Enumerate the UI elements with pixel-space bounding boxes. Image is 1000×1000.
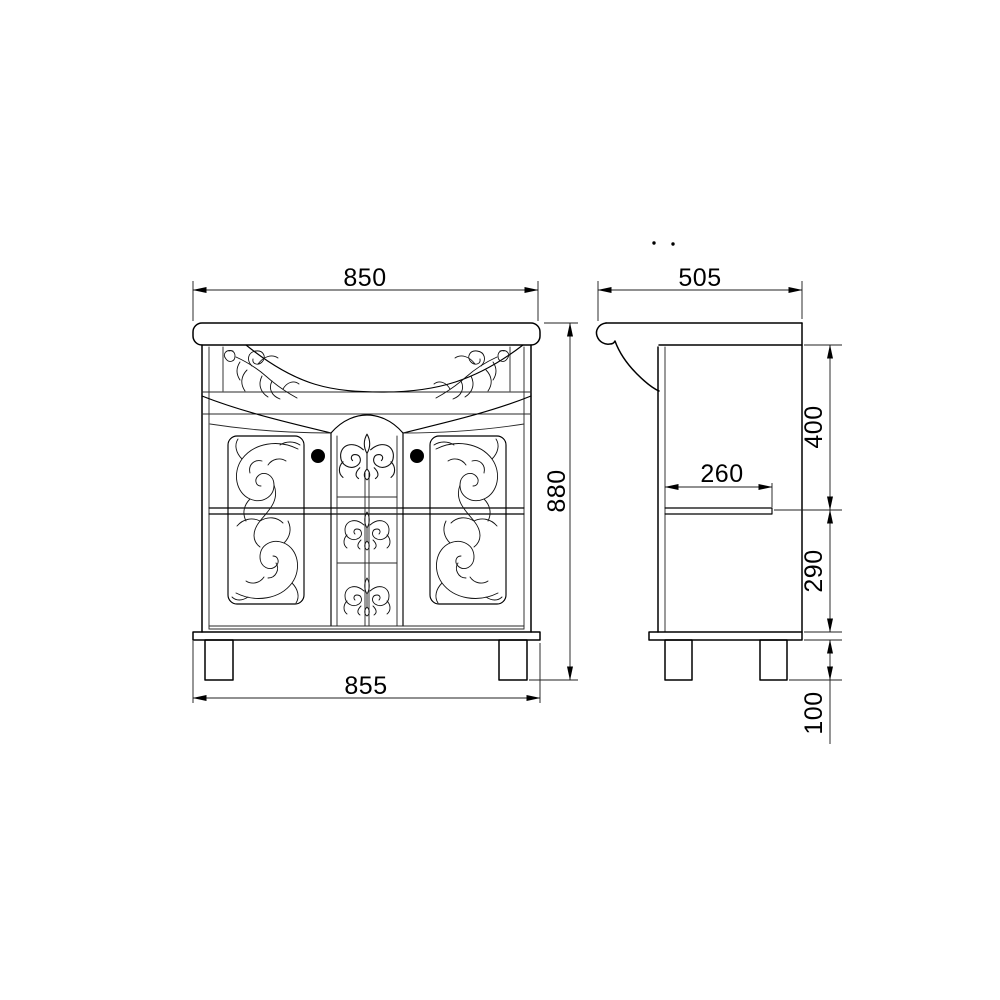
- center-arch: [331, 415, 403, 433]
- side-view: [596, 323, 802, 680]
- dim-front-width-bottom-label: 855: [344, 672, 387, 700]
- dim-side-depth: 505: [598, 264, 802, 321]
- door-panel-right: [430, 436, 506, 604]
- front-countertop: [193, 323, 540, 345]
- side-foot-front: [665, 640, 692, 680]
- dim-side-lower-height: 290: [800, 510, 830, 632]
- side-foot-rear: [760, 640, 787, 680]
- dim-side-leg-height-label: 100: [800, 691, 828, 734]
- dim-side-depth-label: 505: [678, 264, 721, 292]
- side-shelf: [665, 508, 772, 514]
- side-top-profile: [596, 323, 659, 391]
- dim-side-upper-height: 400: [800, 345, 830, 510]
- door-knob-right: [410, 449, 424, 463]
- side-front-panel: [658, 347, 665, 632]
- door-scrollwork-right: [434, 439, 502, 603]
- side-dimensions: 505 260 400 290 100: [598, 264, 842, 744]
- door-scrollwork-left: [232, 439, 300, 603]
- dim-front-width-top: 850: [193, 264, 538, 321]
- dim-side-lower-height-label: 290: [800, 549, 828, 592]
- door-panel-left: [228, 436, 304, 604]
- side-extension-lines: [774, 345, 842, 680]
- drawer-pull-bottom: [344, 578, 390, 616]
- front-view: [193, 323, 540, 680]
- vanity-cabinet-technical-drawing: 850 880 855: [0, 0, 1000, 1000]
- front-dimensions: 850 880 855: [193, 264, 578, 703]
- dim-front-height-label: 880: [543, 469, 571, 512]
- side-plinth-rail: [649, 632, 802, 640]
- front-foot-left: [205, 640, 233, 680]
- dim-shelf-depth: 260: [665, 460, 772, 507]
- stray-dots: [652, 241, 674, 245]
- dim-side-upper-height-label: 400: [800, 405, 828, 448]
- drawing-sheet: 850 880 855: [0, 0, 1000, 1000]
- drawer-pull-middle: [344, 512, 390, 550]
- side-countertop: [596, 323, 802, 632]
- dim-shelf-depth-label: 260: [700, 460, 743, 488]
- dim-side-leg-height: 100: [800, 640, 830, 744]
- dim-front-width-bottom: 855: [193, 641, 540, 703]
- side-base: [649, 632, 802, 680]
- dim-front-width-top-label: 850: [343, 264, 386, 292]
- door-knob-left: [311, 449, 325, 463]
- front-carcass: [202, 345, 531, 632]
- dim-front-height: 880: [529, 323, 578, 680]
- front-foot-right: [499, 640, 527, 680]
- drawer-pull-top: [339, 434, 394, 480]
- front-basin-apron: [202, 345, 531, 433]
- front-plinth-rail: [193, 632, 540, 640]
